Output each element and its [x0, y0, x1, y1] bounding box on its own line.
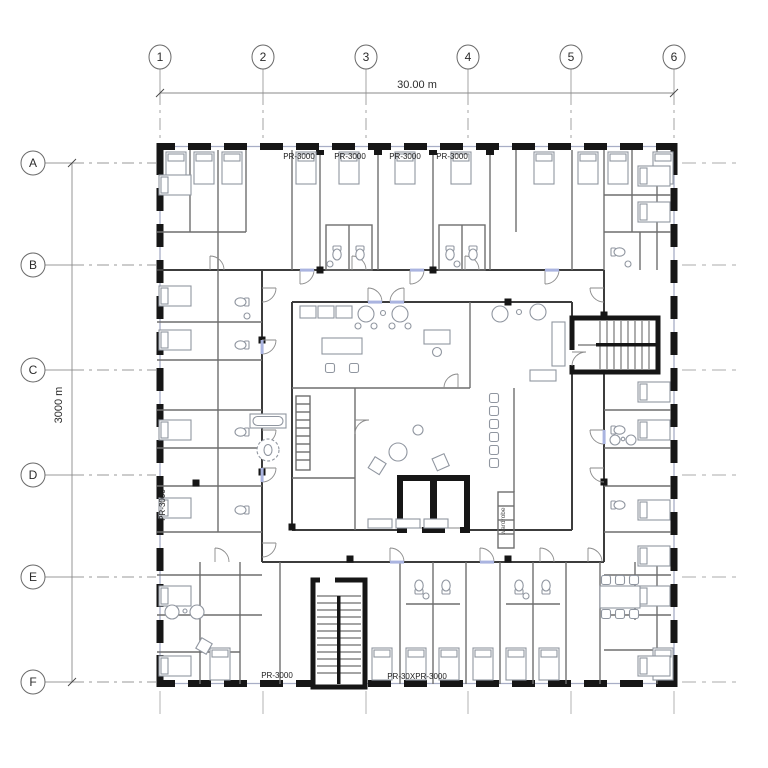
grid-label-row-D: D	[29, 468, 38, 482]
sink-icon	[423, 593, 429, 599]
bed-icon	[159, 420, 191, 440]
toilet-icon	[235, 506, 249, 514]
grid-label-col-5: 5	[568, 50, 575, 64]
grid-label-col-2: 2	[260, 50, 267, 64]
toilet-icon	[356, 246, 364, 260]
bed-icon	[159, 586, 191, 606]
unit-label-top-4: PR-3000	[436, 152, 468, 161]
bed-icon	[506, 648, 526, 680]
sink-icon	[454, 261, 460, 267]
bed-icon	[159, 656, 191, 676]
unit-label-top-2: PR-3000	[334, 152, 366, 161]
bed-icon	[638, 656, 670, 676]
grid-label-row-B: B	[29, 258, 37, 272]
sink-icon	[244, 313, 250, 319]
dimension-top-value: 30.00 m	[397, 79, 437, 91]
bed-icon	[638, 382, 670, 402]
bathtub-icon	[250, 414, 286, 428]
dimension-left: 3000 m	[53, 159, 76, 686]
bed-icon	[222, 152, 242, 184]
bed-icon	[638, 166, 670, 186]
grid-label-col-4: 4	[465, 50, 472, 64]
grid-label-row-C: C	[29, 363, 38, 377]
toilet-icon	[442, 580, 450, 594]
unit-label-left-vertical: PR-3000	[158, 489, 167, 521]
toilet-icon	[611, 426, 625, 434]
dimension-top: 30.00 m	[156, 79, 678, 97]
bed-icon	[539, 648, 559, 680]
floor-plan-page: 1 2 3 4 5 6 A B C D E F 30.00 m 3000 m	[0, 0, 768, 768]
grid-column-stubs-bottom	[160, 691, 674, 714]
bed-icon	[638, 202, 670, 222]
bed-icon	[638, 420, 670, 440]
toilet-icon	[446, 246, 454, 260]
toilet-icon	[542, 580, 550, 594]
unit-label-bottom-right: PR-30XPR-3000	[387, 672, 447, 681]
bed-icon	[159, 175, 191, 195]
bed-icon	[578, 152, 598, 184]
grid-label-col-3: 3	[363, 50, 370, 64]
bed-icon	[608, 152, 628, 184]
toilet-icon	[235, 298, 249, 306]
toilet-icon	[235, 341, 249, 349]
toilet-icon	[415, 580, 423, 594]
accessible-bath-icon	[257, 439, 279, 461]
toilet-icon	[469, 246, 477, 260]
core-label-vertical: wardrobe	[500, 507, 507, 535]
bed-icon	[638, 586, 670, 606]
bed-icon	[159, 286, 191, 306]
dimension-left-value: 3000 m	[53, 387, 65, 424]
bed-icon	[638, 500, 670, 520]
sink-icon	[523, 593, 529, 599]
bed-icon	[473, 648, 493, 680]
sink-icon	[625, 261, 631, 267]
unit-label-top-3: PR-3000	[389, 152, 421, 161]
grid-label-row-A: A	[29, 156, 37, 170]
toilet-icon	[235, 428, 249, 436]
bed-icon	[638, 546, 670, 566]
dining-table-icon	[600, 576, 640, 619]
building-exterior-wall	[160, 147, 674, 684]
stair-core-bottom	[313, 577, 365, 687]
bed-icon	[159, 330, 191, 350]
bed-icon	[210, 648, 230, 680]
sink-icon	[327, 261, 333, 267]
toilet-icon	[611, 248, 625, 256]
floor-plan-canvas: 1 2 3 4 5 6 A B C D E F 30.00 m 3000 m	[0, 0, 768, 768]
bed-icon	[534, 152, 554, 184]
toilet-icon	[333, 246, 341, 260]
unit-label-top-1: PR-3000	[283, 152, 315, 161]
grid-label-row-E: E	[29, 570, 37, 584]
toilet-icon	[515, 580, 523, 594]
grid-row-stubs-right	[682, 163, 742, 682]
grid-label-col-1: 1	[157, 50, 164, 64]
bed-icon	[194, 152, 214, 184]
grid-label-col-6: 6	[671, 50, 678, 64]
toilet-icon	[611, 501, 625, 509]
grid-label-row-F: F	[29, 675, 36, 689]
stair-core-right	[569, 318, 658, 372]
unit-label-bottom-left: PR-3000	[261, 671, 293, 680]
